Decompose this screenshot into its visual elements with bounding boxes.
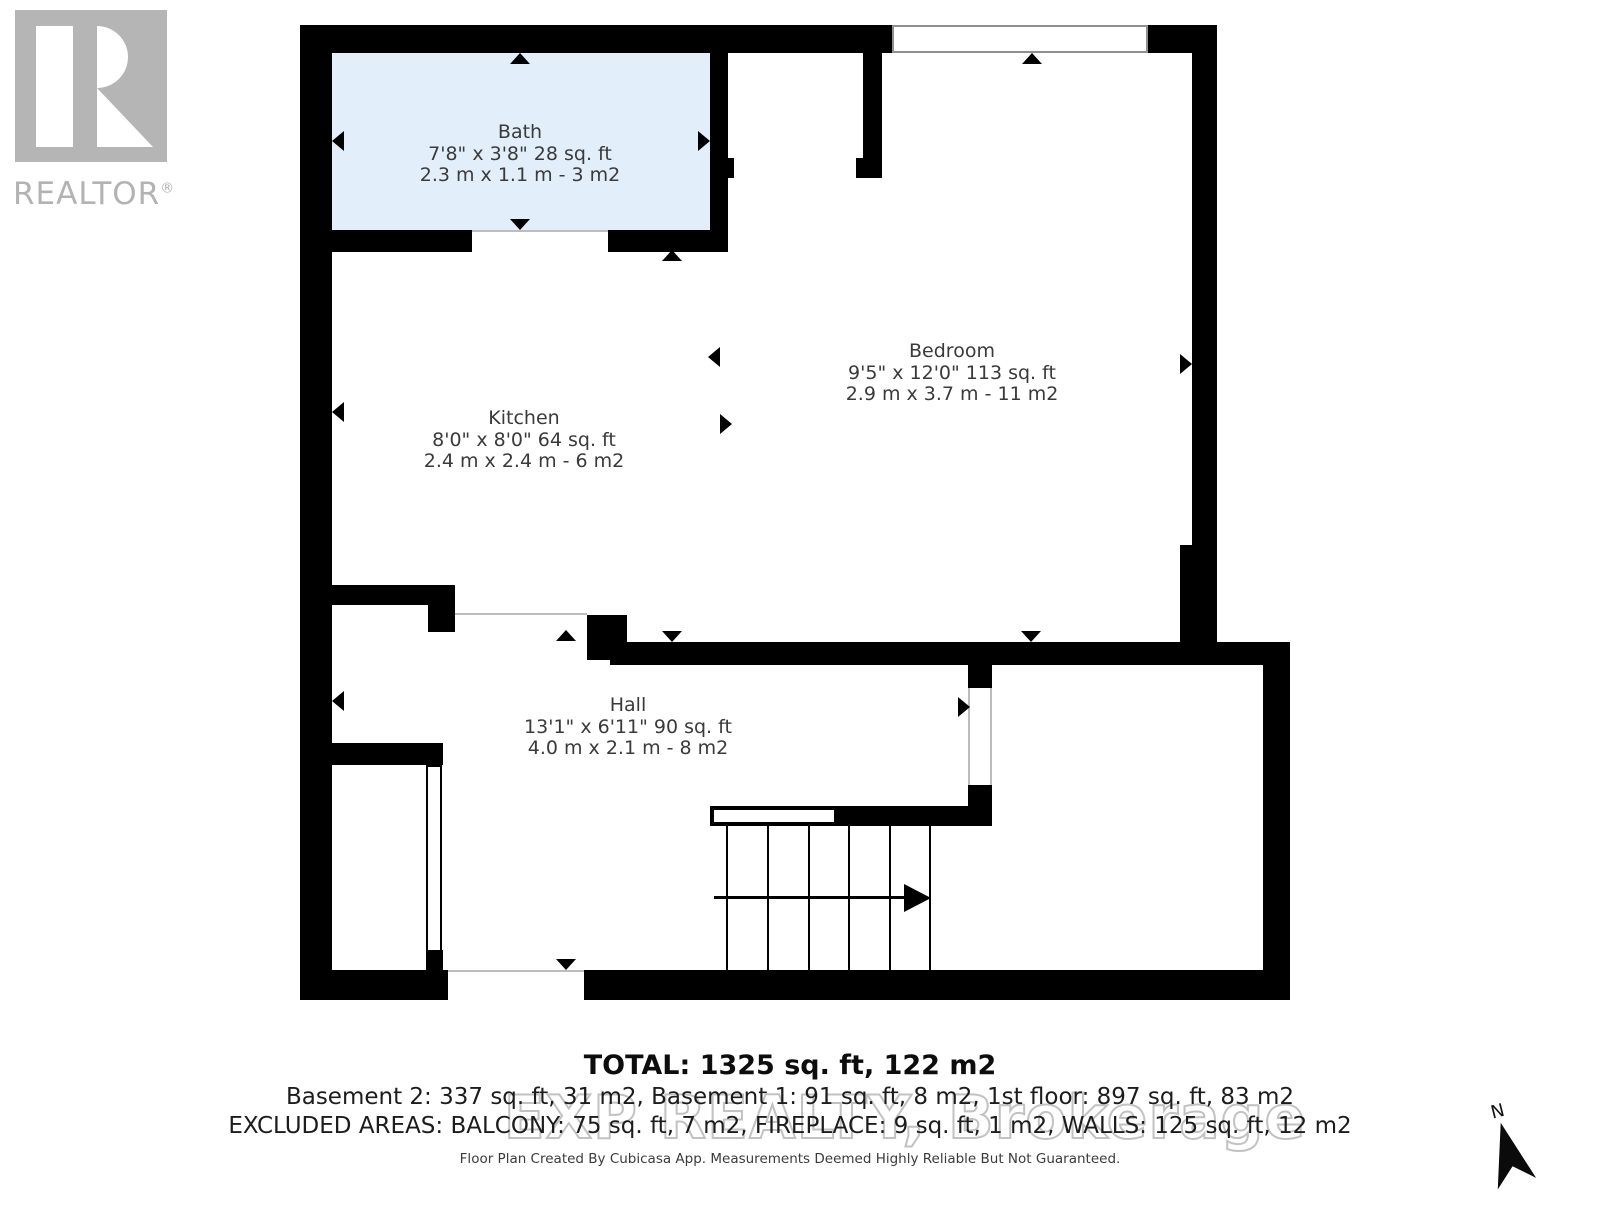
- measure-arrow-down-icon: [510, 219, 530, 230]
- wall: [610, 642, 1290, 665]
- realtor-logo: [15, 10, 167, 162]
- stair-direction-arrowhead: [904, 884, 931, 912]
- floorplan-page: { "logo": { "brand": "REALTOR", "registe…: [0, 0, 1600, 1200]
- measure-arrow-down-icon: [556, 959, 576, 970]
- room-dims-metric: 4.0 m x 2.1 m - 8 m2: [524, 738, 732, 760]
- wall: [856, 158, 882, 178]
- wall: [584, 970, 1290, 1000]
- measure-arrow-right-icon: [698, 131, 710, 151]
- measure-arrow-down-icon: [662, 631, 682, 642]
- wall: [332, 585, 443, 605]
- room-dims-metric: 2.9 m x 3.7 m - 11 m2: [846, 384, 1059, 406]
- excluded-areas-text: EXCLUDED AREAS: BALCONY: 75 sq. ft, 7 m2…: [100, 1113, 1480, 1139]
- wall: [587, 615, 627, 660]
- measure-arrow-right-icon: [720, 414, 732, 434]
- door-opening-line: [448, 970, 584, 972]
- disclaimer-text: Floor Plan Created By Cubicasa App. Meas…: [100, 1151, 1480, 1167]
- measure-arrow-up-icon: [556, 630, 576, 641]
- total-area-text: TOTAL: 1325 sq. ft, 122 m2: [100, 1050, 1480, 1081]
- room-dims-metric: 2.4 m x 2.4 m - 6 m2: [424, 451, 625, 473]
- realtor-r-icon: [15, 10, 167, 162]
- wall: [968, 660, 992, 688]
- room-label-bath: Bath 7'8" x 3'8" 28 sq. ft 2.3 m x 1.1 m…: [420, 122, 621, 187]
- realtor-brand-text: REALTOR: [13, 176, 160, 212]
- wall: [1192, 25, 1217, 545]
- wall: [838, 806, 992, 826]
- room-name: Bath: [420, 122, 621, 144]
- measure-arrow-up-icon: [662, 250, 682, 261]
- measure-arrow-left-icon: [332, 402, 344, 422]
- measure-arrow-up-icon: [1022, 53, 1042, 64]
- door-opening-line: [455, 613, 587, 615]
- room-dims-imperial: 9'5" x 12'0" 113 sq. ft: [846, 363, 1059, 385]
- wall: [710, 158, 734, 178]
- room-name: Kitchen: [424, 408, 625, 430]
- measure-arrow-up-icon: [510, 53, 530, 64]
- wall: [710, 25, 728, 252]
- wall: [300, 25, 892, 53]
- measure-arrow-left-icon: [332, 131, 344, 151]
- realtor-wordmark: REALTOR®: [13, 176, 175, 212]
- wall: [1263, 642, 1290, 1000]
- measure-arrow-left-icon: [708, 347, 720, 367]
- window: [892, 25, 1148, 53]
- wall: [332, 743, 443, 765]
- door-opening-line: [990, 688, 992, 785]
- room-label-bedroom: Bedroom 9'5" x 12'0" 113 sq. ft 2.9 m x …: [846, 341, 1059, 406]
- room-label-kitchen: Kitchen 8'0" x 8'0" 64 sq. ft 2.4 m x 2.…: [424, 408, 625, 473]
- wall: [426, 950, 443, 975]
- wall: [608, 230, 728, 252]
- measure-arrow-down-icon: [1021, 631, 1041, 642]
- floor-areas-text: Basement 2: 337 sq. ft, 31 m2, Basement …: [100, 1084, 1480, 1110]
- room-dims-imperial: 13'1" x 6'11" 90 sq. ft: [524, 717, 732, 739]
- stair-landing: [710, 806, 838, 826]
- wall: [1180, 545, 1217, 647]
- room-dims-imperial: 8'0" x 8'0" 64 sq. ft: [424, 430, 625, 452]
- wall: [300, 230, 472, 252]
- measure-arrow-right-icon: [1180, 354, 1192, 374]
- registered-symbol: ®: [160, 181, 175, 197]
- area-summary: TOTAL: 1325 sq. ft, 122 m2 Basement 2: 3…: [100, 1050, 1480, 1167]
- measure-arrow-right-icon: [958, 697, 970, 717]
- measure-arrow-left-icon: [332, 691, 344, 711]
- wall: [300, 25, 332, 1000]
- room-name: Bedroom: [846, 341, 1059, 363]
- stair-direction-arrow: [714, 896, 906, 899]
- wall: [428, 585, 455, 632]
- wall: [863, 53, 882, 160]
- room-label-hall: Hall 13'1" x 6'11" 90 sq. ft 4.0 m x 2.1…: [524, 695, 732, 760]
- room-dims-imperial: 7'8" x 3'8" 28 sq. ft: [420, 144, 621, 166]
- room-dims-metric: 2.3 m x 1.1 m - 3 m2: [420, 165, 621, 187]
- door-opening-line: [472, 230, 608, 232]
- closet-door: [426, 765, 442, 962]
- room-name: Hall: [524, 695, 732, 717]
